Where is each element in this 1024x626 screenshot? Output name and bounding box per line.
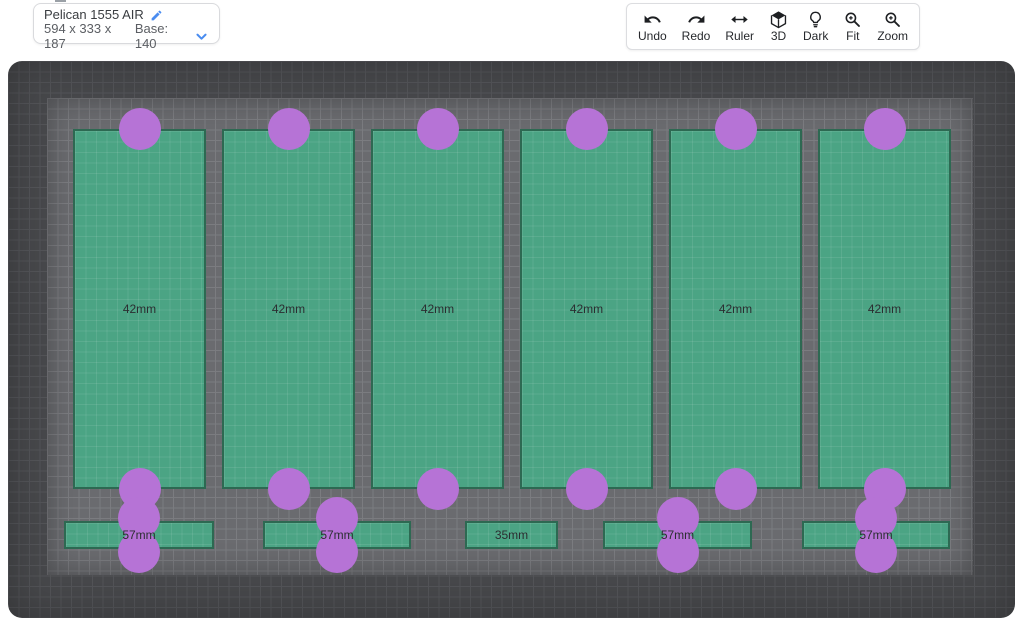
- view-3d-button[interactable]: 3D: [769, 9, 788, 44]
- finger-hole[interactable]: [316, 531, 358, 573]
- foam-pocket[interactable]: [222, 129, 355, 489]
- redo-button[interactable]: Redo: [682, 9, 711, 44]
- zoom-fit-icon: [843, 10, 862, 29]
- ruler-button[interactable]: Ruler: [725, 9, 754, 44]
- finger-hole[interactable]: [417, 108, 459, 150]
- finger-hole[interactable]: [566, 108, 608, 150]
- edit-icon[interactable]: [150, 9, 163, 22]
- undo-icon: [643, 10, 662, 29]
- finger-hole[interactable]: [268, 108, 310, 150]
- finger-hole[interactable]: [119, 108, 161, 150]
- case-info-card: Pelican 1555 AIR 594 x 333 x 187 Base: 1…: [33, 3, 220, 44]
- ruler-icon: [730, 10, 749, 29]
- foam-pocket[interactable]: [520, 129, 653, 489]
- undo-button[interactable]: Undo: [638, 9, 667, 44]
- foam-pocket[interactable]: [465, 521, 558, 549]
- zoom-button[interactable]: Zoom: [877, 9, 908, 44]
- finger-hole[interactable]: [118, 531, 160, 573]
- fit-button[interactable]: Fit: [843, 9, 862, 44]
- dark-mode-button[interactable]: Dark: [803, 9, 828, 44]
- lightbulb-icon: [806, 10, 825, 29]
- case-title: Pelican 1555 AIR: [44, 8, 144, 22]
- foam-pocket[interactable]: [371, 129, 504, 489]
- cropped-element-artifact: [55, 0, 66, 2]
- finger-hole[interactable]: [864, 108, 906, 150]
- finger-hole[interactable]: [268, 468, 310, 510]
- base-selector[interactable]: Base: 140: [135, 22, 209, 51]
- finger-hole[interactable]: [715, 468, 757, 510]
- finger-hole[interactable]: [657, 531, 699, 573]
- foam-pocket[interactable]: [73, 129, 206, 489]
- zoom-in-icon: [883, 10, 902, 29]
- finger-hole[interactable]: [855, 531, 897, 573]
- finger-hole[interactable]: [715, 108, 757, 150]
- chevron-down-icon: [194, 29, 209, 44]
- redo-icon: [687, 10, 706, 29]
- finger-hole[interactable]: [566, 468, 608, 510]
- finger-hole[interactable]: [417, 468, 459, 510]
- toolbar: Undo Redo Ruler 3D: [626, 3, 920, 50]
- cube-3d-icon: [769, 10, 788, 29]
- base-height-label: Base: 140: [135, 22, 192, 51]
- foam-pocket[interactable]: [669, 129, 802, 489]
- foam-pocket[interactable]: [818, 129, 951, 489]
- design-canvas[interactable]: 42mm42mm42mm42mm42mm42mm57mm57mm35mm57mm…: [8, 61, 1015, 618]
- case-dimensions: 594 x 333 x 187: [44, 22, 135, 51]
